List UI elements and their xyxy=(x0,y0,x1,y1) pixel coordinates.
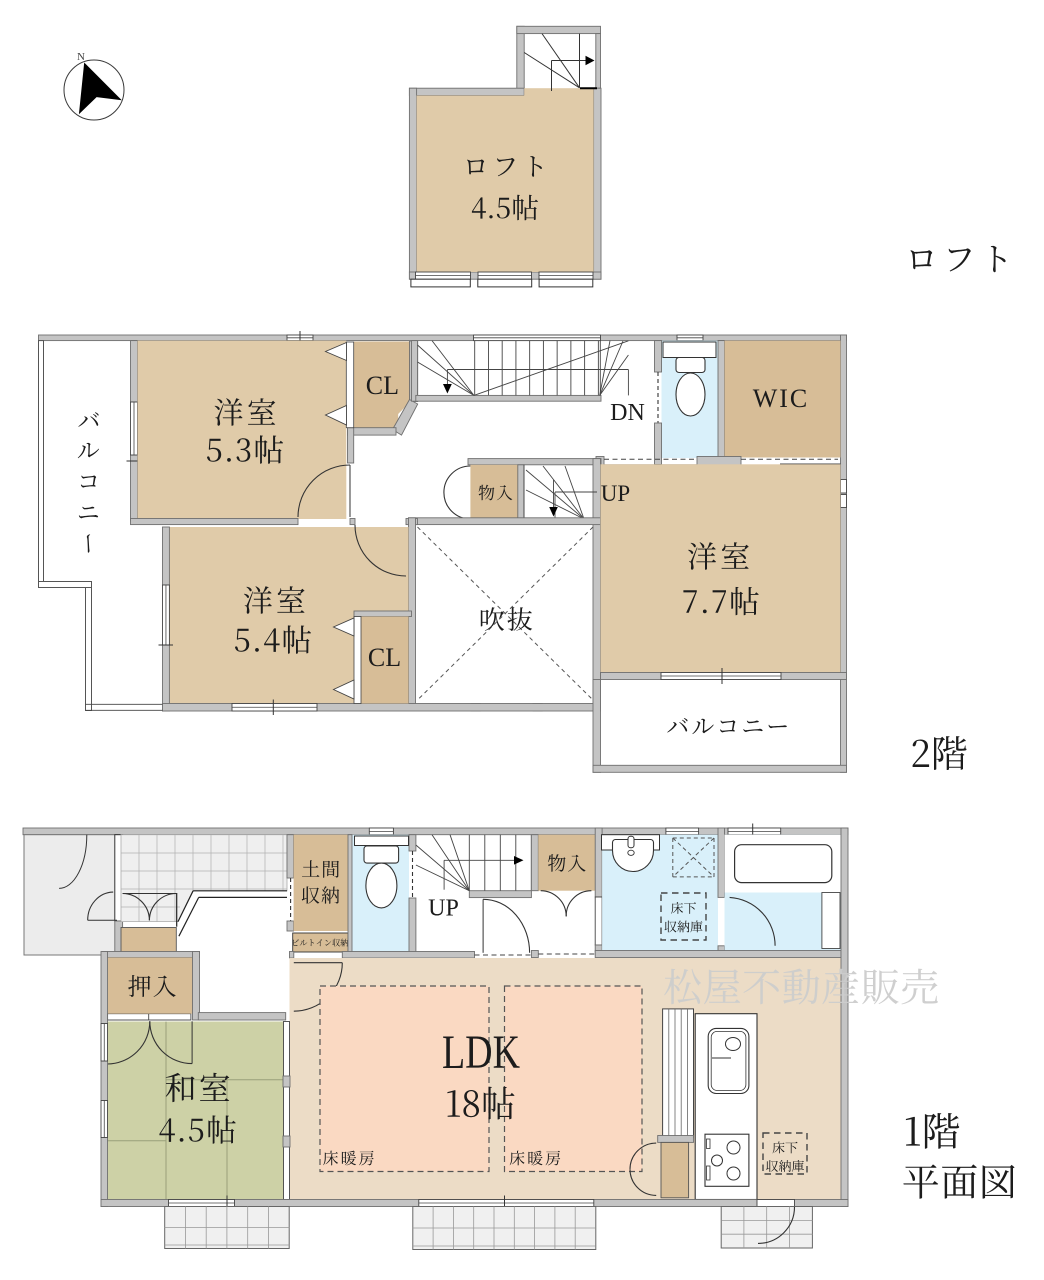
svg-text:CL: CL xyxy=(366,371,399,400)
svg-text:N: N xyxy=(77,51,85,63)
svg-text:UP: UP xyxy=(428,896,459,922)
svg-text:DN: DN xyxy=(610,400,645,426)
svg-text:UP: UP xyxy=(601,481,630,506)
svg-text:LDK: LDK xyxy=(442,1026,520,1079)
svg-text:WIC: WIC xyxy=(753,384,810,413)
svg-text:CL: CL xyxy=(368,643,401,672)
